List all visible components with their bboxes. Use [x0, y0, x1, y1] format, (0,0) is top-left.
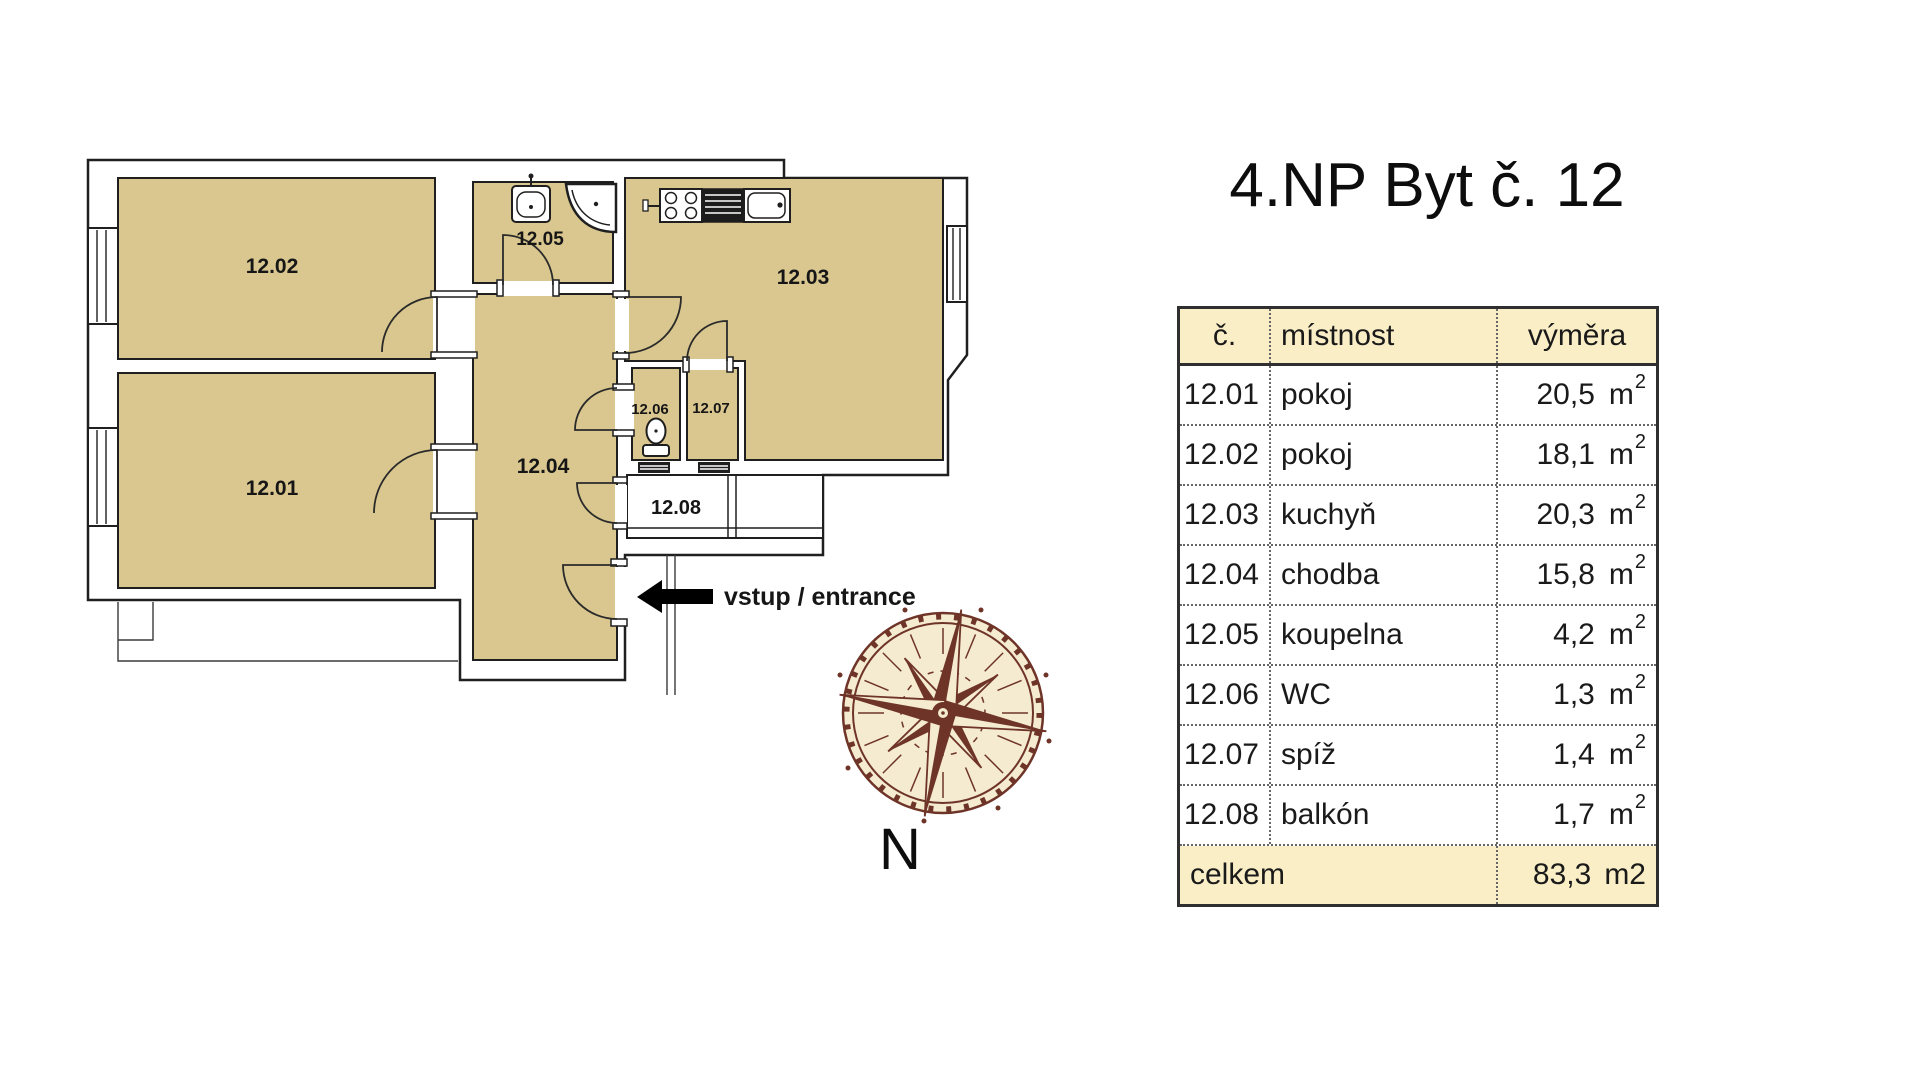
area-unit-exp: 2 — [1635, 431, 1646, 454]
cell-room-area: 20,3 m 2 — [1498, 486, 1656, 544]
cell-room-no: 12.02 — [1180, 426, 1271, 484]
cell-room-area: 20,5 m 2 — [1498, 366, 1656, 424]
cell-room-name: chodba — [1271, 546, 1498, 604]
page: 12.02 12.01 12.05 12.03 12.04 12.06 12.0… — [0, 0, 1920, 1080]
north-label: N — [855, 816, 945, 883]
cell-room-name: spíž — [1271, 726, 1498, 784]
cell-room-area: 4,2 m 2 — [1498, 606, 1656, 664]
cell-room-no: 12.08 — [1180, 786, 1271, 844]
room-1205-label: 12.05 — [516, 229, 564, 250]
kitchen-sink-icon — [702, 189, 790, 222]
cell-room-name: pokoj — [1271, 366, 1498, 424]
table-body: 12.01 pokoj 20,5 m 2 12.02 pokoj 18,1 m … — [1180, 366, 1656, 846]
area-unit-exp: 2 — [1635, 791, 1646, 814]
area-value: 1,7 — [1553, 798, 1595, 832]
area-unit: m — [1609, 738, 1634, 772]
table-row: 12.03 kuchyň 20,3 m 2 — [1180, 486, 1656, 546]
area-unit: m — [1609, 618, 1634, 652]
area-table: č. místnost výměra 12.01 pokoj 20,5 m 2 … — [1177, 306, 1659, 907]
area-value: 20,5 — [1536, 378, 1594, 412]
header-cell-no: č. — [1180, 309, 1271, 363]
table-row: 12.08 balkón 1,7 m 2 — [1180, 786, 1656, 846]
area-unit-exp: 2 — [1635, 731, 1646, 754]
room-1202-label: 12.02 — [246, 255, 299, 278]
area-value: 1,3 — [1553, 678, 1595, 712]
cell-room-area: 15,8 m 2 — [1498, 546, 1656, 604]
area-unit-exp: 2 — [1635, 611, 1646, 634]
cell-room-no: 12.04 — [1180, 546, 1271, 604]
area-unit: m — [1609, 798, 1634, 832]
footer-total-value: 83,3 — [1533, 858, 1591, 892]
cell-room-name: koupelna — [1271, 606, 1498, 664]
cell-room-no: 12.07 — [1180, 726, 1271, 784]
cell-room-name: WC — [1271, 666, 1498, 724]
cell-room-no: 12.05 — [1180, 606, 1271, 664]
cell-room-area: 1,7 m 2 — [1498, 786, 1656, 844]
compass-rose-icon — [830, 600, 1056, 826]
area-unit: m — [1609, 378, 1634, 412]
window-icon — [88, 228, 118, 324]
cell-room-name: balkón — [1271, 786, 1498, 844]
table-row: 12.07 spíž 1,4 m 2 — [1180, 726, 1656, 786]
area-unit-exp: 2 — [1635, 671, 1646, 694]
table-row: 12.02 pokoj 18,1 m 2 — [1180, 426, 1656, 486]
window-icon — [947, 226, 967, 302]
area-unit: m — [1609, 678, 1634, 712]
table-header-row: č. místnost výměra — [1180, 309, 1656, 366]
cell-room-name: pokoj — [1271, 426, 1498, 484]
area-unit-exp: 2 — [1635, 551, 1646, 574]
area-value: 15,8 — [1536, 558, 1594, 592]
footer-total: 83,3 m2 — [1498, 846, 1656, 904]
cell-room-no: 12.01 — [1180, 366, 1271, 424]
footer-label: celkem — [1180, 846, 1498, 904]
area-unit: m — [1609, 438, 1634, 472]
table-row: 12.01 pokoj 20,5 m 2 — [1180, 366, 1656, 426]
room-1201-label: 12.01 — [246, 477, 299, 500]
table-row: 12.06 WC 1,3 m 2 — [1180, 666, 1656, 726]
cell-room-area: 1,4 m 2 — [1498, 726, 1656, 784]
cell-room-name: kuchyň — [1271, 486, 1498, 544]
room-1207-label: 12.07 — [692, 400, 730, 417]
area-value: 1,4 — [1553, 738, 1595, 772]
cell-room-no: 12.06 — [1180, 666, 1271, 724]
room-1208-label: 12.08 — [651, 497, 701, 519]
header-cell-room: místnost — [1271, 309, 1498, 363]
area-unit: m — [1609, 558, 1634, 592]
cell-room-area: 18,1 m 2 — [1498, 426, 1656, 484]
cell-room-area: 1,3 m 2 — [1498, 666, 1656, 724]
area-value: 20,3 — [1536, 498, 1594, 532]
table-row: 12.04 chodba 15,8 m 2 — [1180, 546, 1656, 606]
table-footer-row: celkem 83,3 m2 — [1180, 846, 1656, 904]
footer-total-unit: m2 — [1604, 858, 1646, 892]
area-unit-exp: 2 — [1635, 491, 1646, 514]
cell-room-no: 12.03 — [1180, 486, 1271, 544]
area-value: 18,1 — [1536, 438, 1594, 472]
table-row: 12.05 koupelna 4,2 m 2 — [1180, 606, 1656, 666]
page-title: 4.NP Byt č. 12 — [1177, 150, 1677, 221]
area-value: 4,2 — [1553, 618, 1595, 652]
room-1204-label: 12.04 — [517, 455, 570, 478]
room-1206-label: 12.06 — [631, 401, 669, 418]
room-1203-label: 12.03 — [777, 266, 830, 289]
window-icon — [88, 428, 118, 526]
area-unit-exp: 2 — [1635, 371, 1646, 394]
header-cell-area: výměra — [1498, 309, 1656, 363]
area-unit: m — [1609, 498, 1634, 532]
